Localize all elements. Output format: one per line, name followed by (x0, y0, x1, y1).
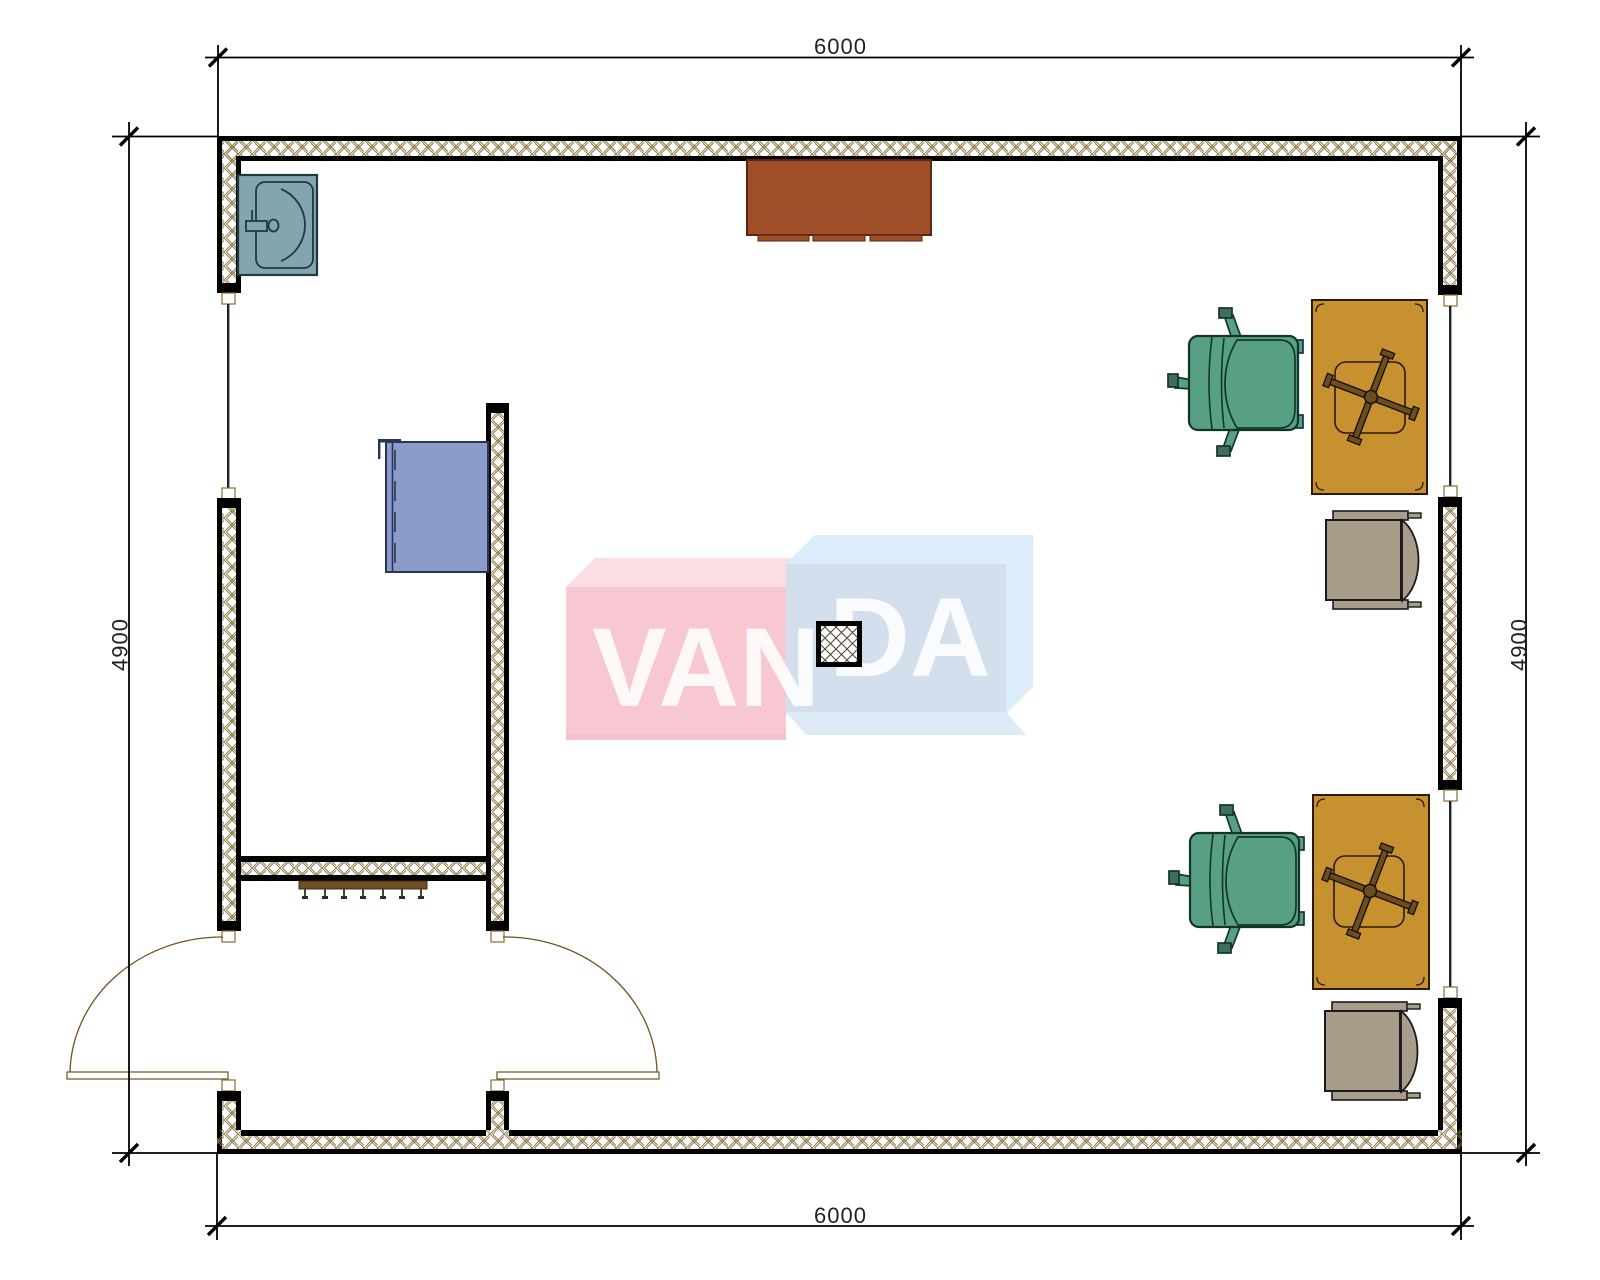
svg-text:VAN: VAN (592, 605, 820, 730)
svg-text:4900: 4900 (1507, 618, 1532, 671)
svg-text:6000: 6000 (814, 1203, 867, 1228)
svg-text:4900: 4900 (108, 618, 133, 671)
svg-text:6000: 6000 (814, 34, 867, 59)
